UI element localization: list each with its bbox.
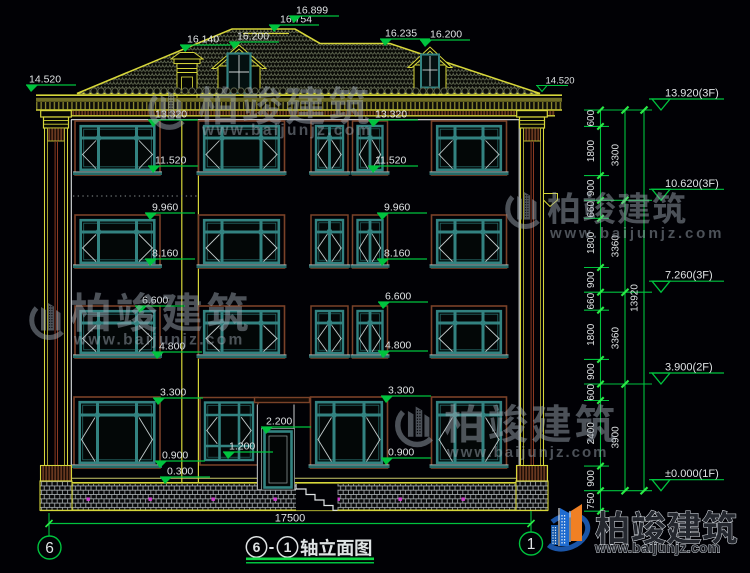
svg-text:13.920(3F): 13.920(3F) bbox=[665, 88, 719, 100]
svg-text:0.300: 0.300 bbox=[167, 466, 193, 478]
svg-text:3.900(2F): 3.900(2F) bbox=[665, 362, 713, 374]
svg-text:6.600: 6.600 bbox=[385, 291, 411, 303]
svg-text:6: 6 bbox=[45, 540, 54, 557]
svg-text:13.320: 13.320 bbox=[375, 109, 407, 121]
svg-text:7.260(3F): 7.260(3F) bbox=[665, 270, 713, 282]
svg-text:600: 600 bbox=[586, 109, 597, 126]
svg-text:17500: 17500 bbox=[275, 513, 306, 525]
svg-text:8.160: 8.160 bbox=[384, 248, 410, 260]
svg-text:750: 750 bbox=[586, 492, 597, 509]
svg-text:14.520: 14.520 bbox=[29, 74, 61, 86]
svg-text:1.200: 1.200 bbox=[229, 441, 255, 453]
svg-text:www.baijunjz.com: www.baijunjz.com bbox=[201, 122, 373, 139]
svg-text:3360: 3360 bbox=[611, 327, 622, 350]
svg-text:1: 1 bbox=[527, 536, 536, 553]
svg-text:2.200: 2.200 bbox=[266, 416, 292, 428]
svg-text:www.baijunjz.com: www.baijunjz.com bbox=[446, 444, 608, 461]
svg-text:10.620(3F): 10.620(3F) bbox=[665, 178, 719, 190]
svg-text:±0.000(1F): ±0.000(1F) bbox=[665, 468, 719, 480]
svg-text:6: 6 bbox=[253, 539, 261, 555]
svg-text:3.300: 3.300 bbox=[160, 387, 186, 399]
svg-text:4.800: 4.800 bbox=[385, 340, 411, 352]
svg-text:13920: 13920 bbox=[630, 284, 641, 312]
svg-text:16.140: 16.140 bbox=[187, 34, 219, 46]
svg-text:900: 900 bbox=[586, 363, 597, 380]
svg-text:1: 1 bbox=[284, 539, 292, 555]
svg-text:16.200: 16.200 bbox=[237, 31, 269, 43]
svg-text:900: 900 bbox=[586, 271, 597, 288]
svg-text:3300: 3300 bbox=[611, 144, 622, 167]
svg-text:1800: 1800 bbox=[586, 139, 597, 162]
svg-text:www.baijunjz.com: www.baijunjz.com bbox=[73, 332, 245, 349]
svg-text:600: 600 bbox=[586, 384, 597, 401]
svg-text:8.160: 8.160 bbox=[152, 248, 178, 260]
svg-text:16.235: 16.235 bbox=[385, 28, 417, 40]
svg-text:900: 900 bbox=[586, 470, 597, 487]
svg-text:11.520: 11.520 bbox=[155, 155, 186, 167]
svg-text:www.baijunjz.com: www.baijunjz.com bbox=[549, 225, 724, 242]
svg-text:14.520: 14.520 bbox=[546, 76, 575, 87]
svg-text:3.300: 3.300 bbox=[388, 385, 414, 397]
svg-text:0.900: 0.900 bbox=[162, 450, 188, 462]
svg-text:660: 660 bbox=[586, 292, 597, 309]
svg-text:16.200: 16.200 bbox=[430, 29, 462, 41]
svg-text:1800: 1800 bbox=[586, 323, 597, 346]
svg-text:-: - bbox=[269, 538, 275, 557]
svg-text:9.960: 9.960 bbox=[384, 202, 410, 214]
svg-text:www.baijunjz.com: www.baijunjz.com bbox=[594, 540, 721, 556]
svg-text:0.900: 0.900 bbox=[388, 447, 414, 459]
svg-text:16.899: 16.899 bbox=[296, 5, 328, 17]
svg-text:11.520: 11.520 bbox=[375, 155, 406, 167]
svg-text:9.960: 9.960 bbox=[152, 202, 178, 214]
